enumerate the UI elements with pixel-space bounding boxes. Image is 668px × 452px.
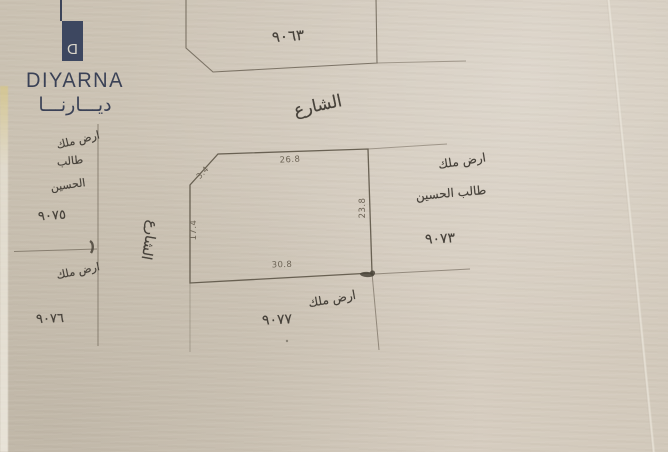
boundary-extension-right-top: [368, 144, 447, 149]
logo-arabic-wordmark: ديـــارنـــا: [16, 94, 134, 116]
ink-speck: [286, 340, 288, 342]
left-upper-owner-line2: طالب: [56, 153, 83, 169]
logo-monogram: D: [67, 42, 78, 57]
corner-point: [370, 270, 375, 275]
dimension-top: 26.8: [279, 155, 300, 165]
logo-mark: D: [62, 21, 83, 61]
street-line-extension-top: [377, 61, 466, 63]
left-parcel-divider: [14, 249, 97, 252]
plot-number-9075: ٩٠٧٥: [38, 208, 67, 225]
dimension-right: 23.8: [358, 198, 367, 219]
plot-number-9073: ٩٠٧٣: [425, 230, 456, 248]
boundary-extension-down-right: [372, 273, 379, 350]
logo-wordmark: DIYARNA: [16, 70, 134, 94]
plot-number-9076: ٩٠٧٦: [36, 311, 64, 327]
boundary-extension-right-bottom: [374, 269, 470, 274]
plot-number-9077: ٩٠٧٧: [262, 311, 293, 329]
dimension-bottom: 30.8: [272, 260, 293, 270]
logo-vertical-line: [60, 0, 62, 21]
plot-number-9063: ٩٠٦٣: [271, 26, 304, 46]
scanned-plot-plan: D DIYARNA ديـــارنـــا ٩٠٦٣ الشارع الشار…: [0, 0, 668, 452]
dimension-left: 17.4: [189, 220, 198, 241]
plot-linework: [0, 0, 668, 452]
divider-hook-mark: [90, 241, 93, 253]
